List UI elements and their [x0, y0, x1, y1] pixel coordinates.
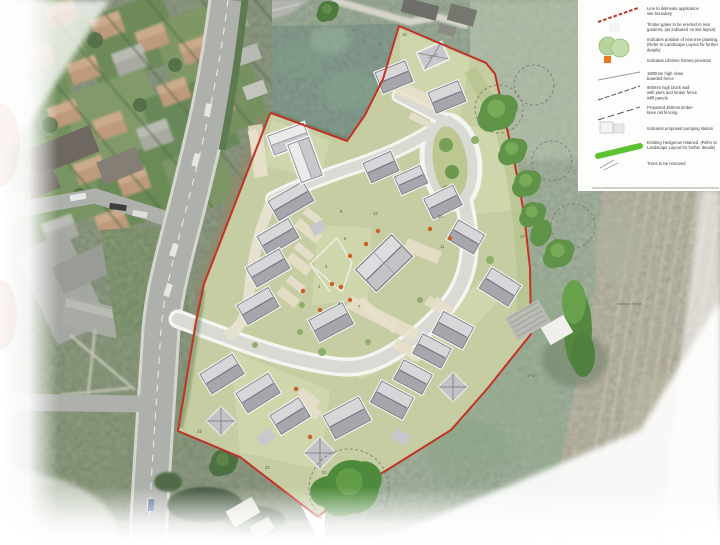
svg-text:22: 22	[265, 465, 270, 470]
svg-text:21: 21	[322, 470, 327, 475]
svg-text:Landscape Layout for further d: Landscape Layout for further details)	[647, 145, 716, 150]
svg-text:site boundary: site boundary	[647, 11, 673, 16]
svg-text:17: 17	[520, 234, 525, 239]
svg-text:Indicates proposed pumping sta: Indicates proposed pumping station	[647, 126, 714, 131]
svg-text:24: 24	[197, 429, 202, 434]
svg-text:SPW: SPW	[527, 374, 536, 378]
svg-text:boarded fence: boarded fence	[647, 76, 674, 81]
svg-text:knee rail fencing: knee rail fencing	[647, 110, 678, 115]
svg-text:infill panels: infill panels	[647, 95, 668, 100]
svg-text:Trees to be removed: Trees to be removed	[647, 161, 686, 166]
svg-text:gardens, (as indicated on site: gardens, (as indicated on site layout)	[647, 27, 716, 32]
svg-text:details): details)	[647, 47, 661, 52]
svg-text:roadside hedge: roadside hedge	[617, 302, 642, 306]
svg-text:13: 13	[373, 211, 378, 216]
svg-text:Indicates Lifetime homes provi: Indicates Lifetime homes provision	[647, 58, 712, 63]
svg-text:11: 11	[440, 244, 445, 249]
svg-text:10: 10	[438, 214, 443, 219]
svg-text:15: 15	[402, 32, 407, 37]
